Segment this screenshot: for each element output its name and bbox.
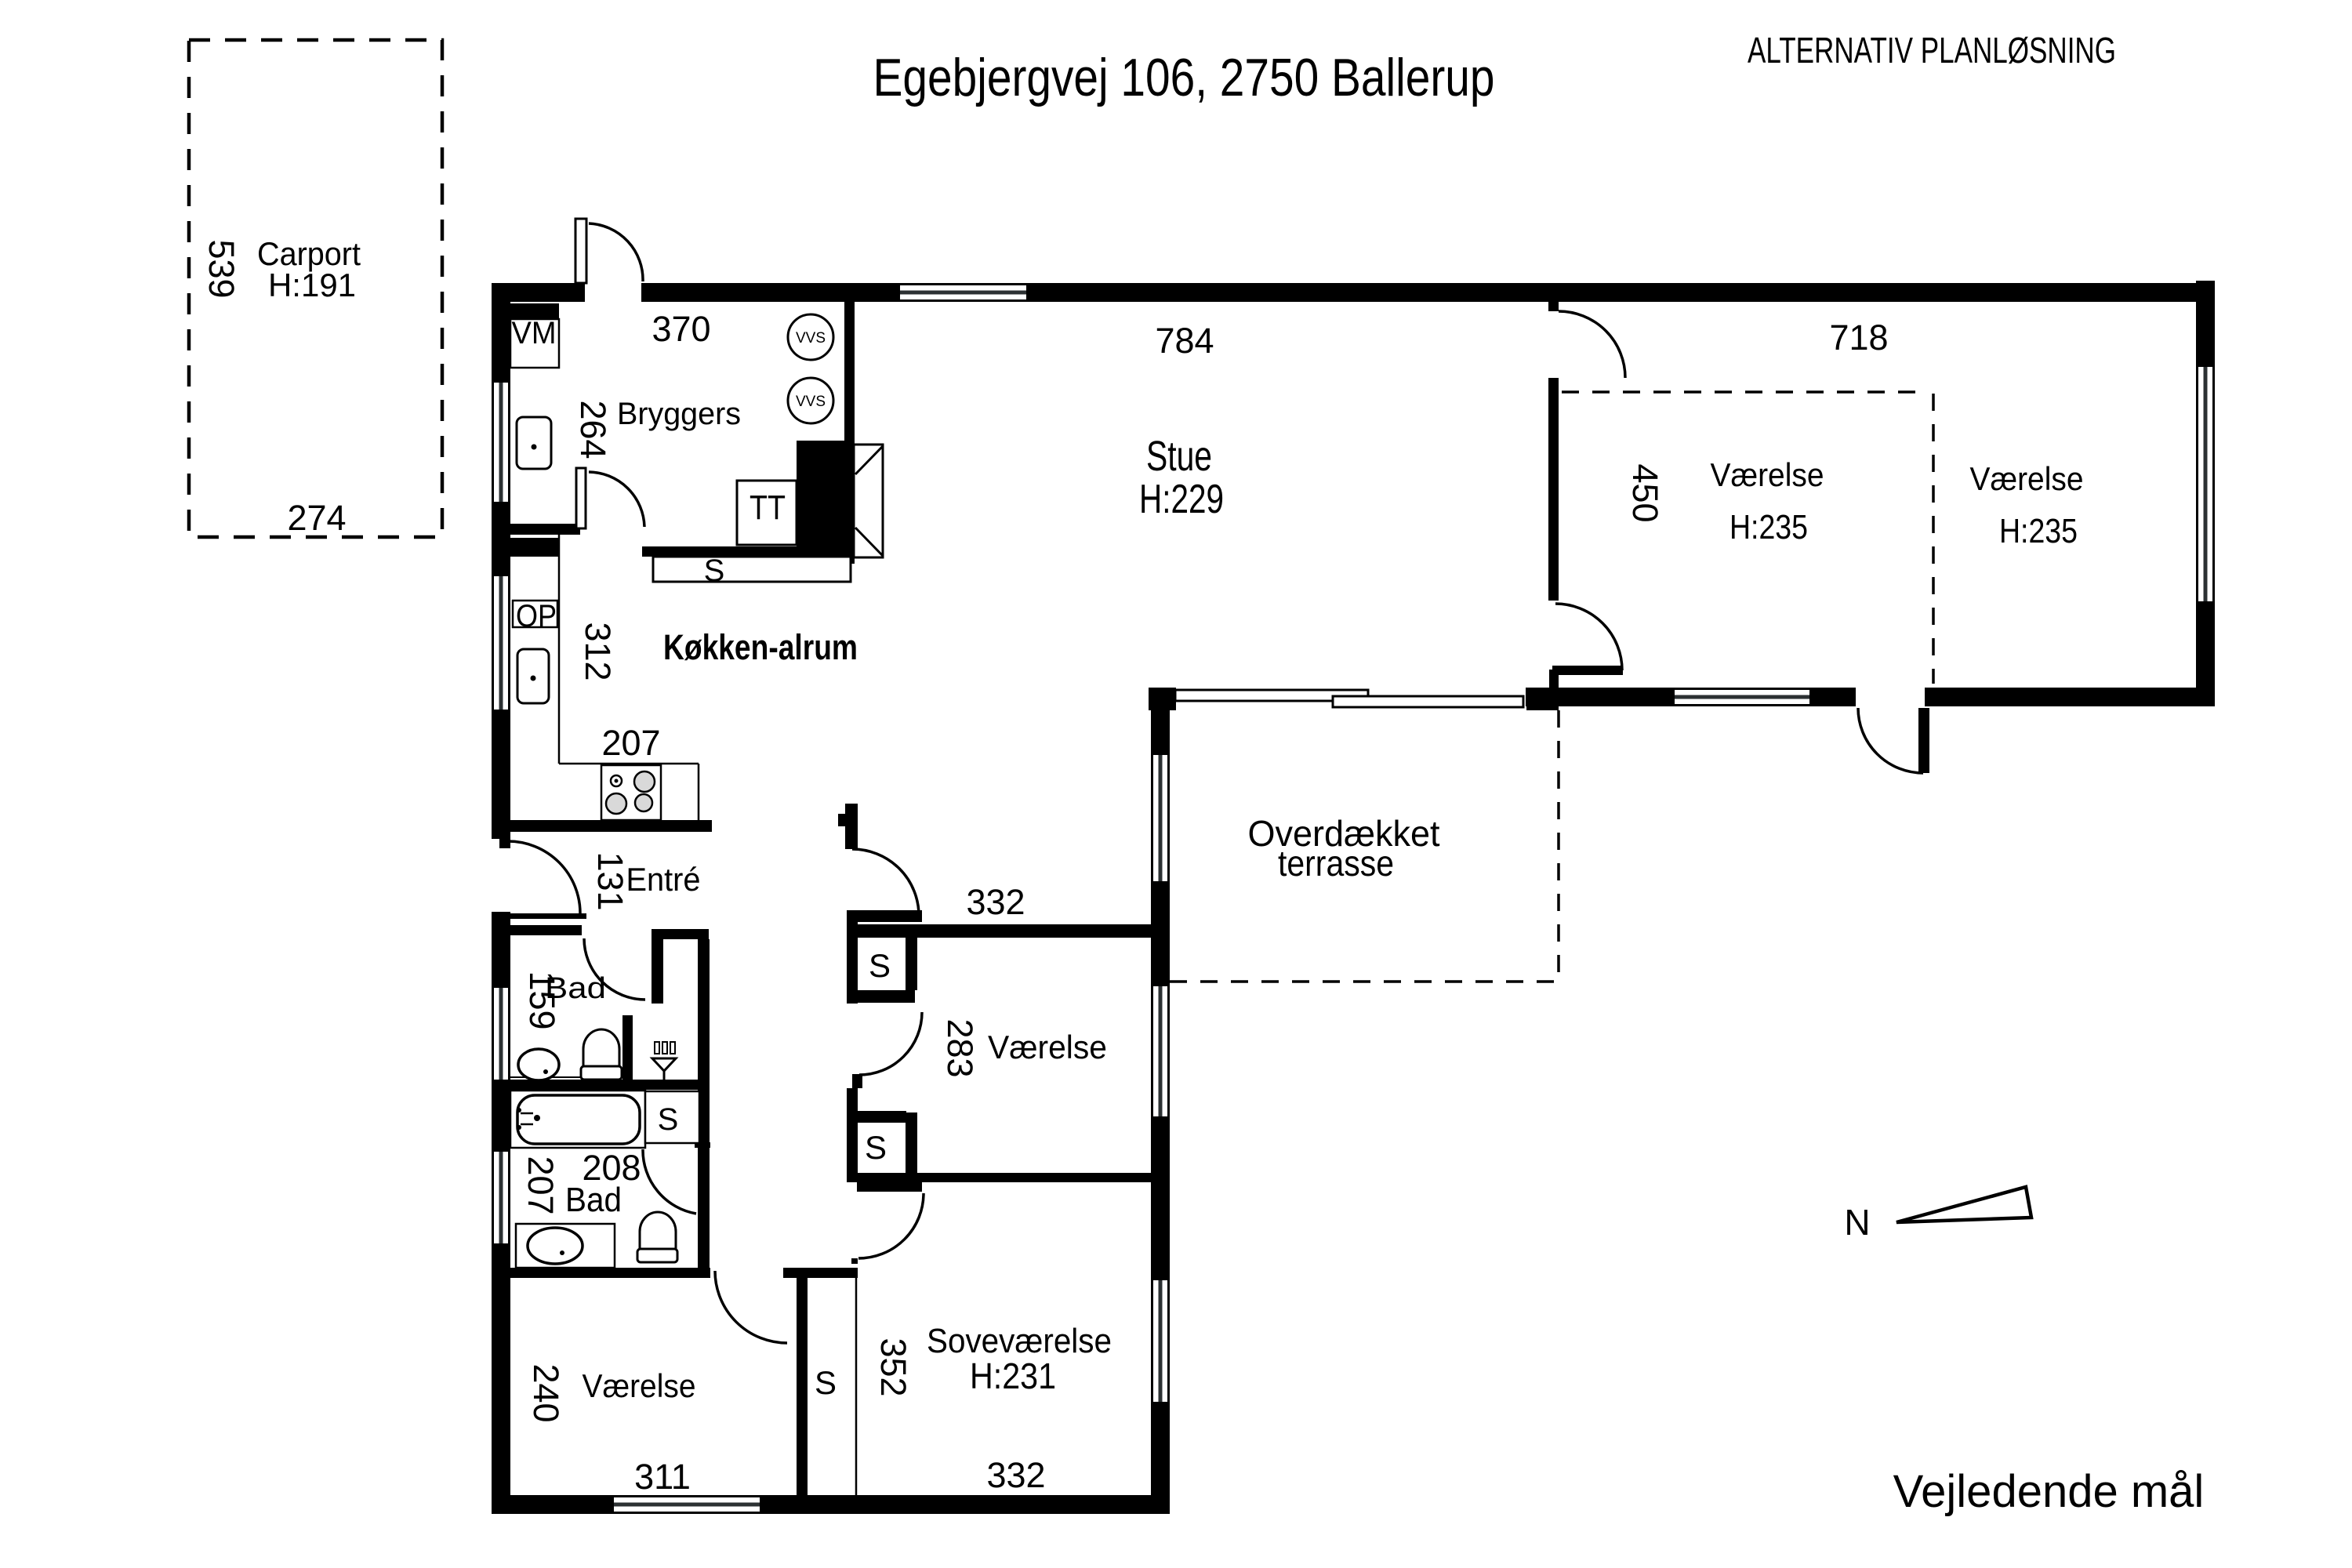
svg-text:Værelse: Værelse [1711, 456, 1824, 493]
svg-text:VVS: VVS [796, 394, 826, 410]
svg-text:283: 283 [940, 1018, 980, 1077]
svg-text:terrasse: terrasse [1278, 843, 1394, 884]
svg-text:S: S [865, 1129, 887, 1166]
svg-text:VM: VM [512, 316, 557, 350]
svg-text:H:229: H:229 [1139, 477, 1224, 522]
svg-text:332: 332 [966, 882, 1025, 922]
svg-text:S: S [815, 1364, 837, 1401]
svg-text:TT: TT [750, 488, 786, 527]
svg-text:S: S [704, 554, 725, 588]
svg-text:131: 131 [590, 851, 630, 910]
svg-text:Soveværelse: Soveværelse [927, 1322, 1112, 1360]
svg-text:332: 332 [986, 1455, 1045, 1495]
svg-text:VVS: VVS [796, 330, 826, 347]
svg-text:Køkken-alrum: Køkken-alrum [663, 627, 858, 667]
svg-text:312: 312 [578, 622, 618, 681]
svg-text:ALTERNATIV PLANLØSNING: ALTERNATIV PLANLØSNING [1748, 30, 2116, 71]
svg-text:H:191: H:191 [268, 267, 356, 303]
svg-text:370: 370 [652, 309, 710, 349]
svg-text:539: 539 [201, 239, 241, 298]
svg-text:N: N [1844, 1202, 1870, 1243]
svg-text:240: 240 [526, 1363, 566, 1422]
svg-text:207: 207 [601, 723, 660, 763]
svg-text:Værelse: Værelse [988, 1029, 1107, 1065]
svg-text:311: 311 [634, 1457, 691, 1497]
svg-text:Bryggers: Bryggers [617, 397, 741, 431]
svg-text:Værelse: Værelse [1970, 460, 2084, 497]
svg-text:Vejledende mål: Vejledende mål [1893, 1466, 2205, 1517]
svg-text:264: 264 [573, 400, 613, 459]
svg-text:Egebjergvej 106, 2750 Ballerup: Egebjergvej 106, 2750 Ballerup [873, 48, 1495, 107]
svg-text:H:231: H:231 [970, 1356, 1056, 1396]
svg-text:784: 784 [1155, 321, 1214, 361]
svg-text:S: S [658, 1102, 679, 1137]
svg-text:Bad: Bad [565, 1181, 622, 1219]
svg-text:274: 274 [287, 498, 346, 538]
svg-text:OP: OP [516, 599, 557, 633]
svg-text:450: 450 [1625, 463, 1665, 522]
svg-text:H:235: H:235 [1730, 508, 1808, 546]
svg-text:Stue: Stue [1146, 433, 1212, 480]
svg-text:S: S [869, 947, 891, 984]
svg-text:352: 352 [873, 1338, 913, 1396]
svg-text:Værelse: Værelse [583, 1367, 696, 1404]
svg-text:H:235: H:235 [1999, 512, 2078, 550]
svg-text:718: 718 [1829, 318, 1888, 358]
svg-text:Entré: Entré [626, 861, 701, 898]
svg-text:159: 159 [522, 971, 562, 1029]
svg-text:207: 207 [521, 1156, 561, 1214]
